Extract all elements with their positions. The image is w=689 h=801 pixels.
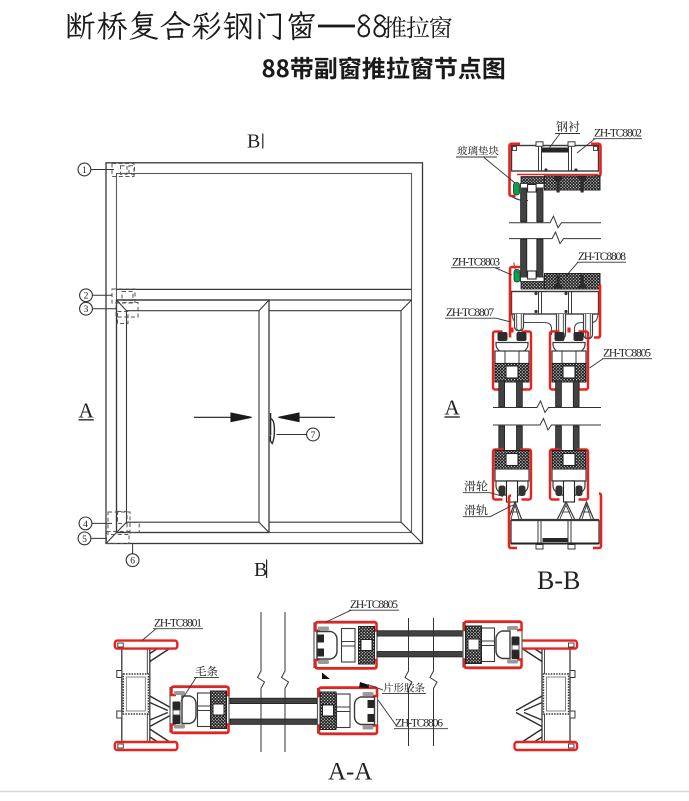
svg-text:4: 4 [83,520,88,530]
svg-text:ZH-TC8806: ZH-TC8806 [395,718,443,730]
svg-text:A-A: A-A [328,759,372,786]
svg-text:B: B [247,130,260,152]
svg-text:B: B [254,559,267,581]
svg-text:A: A [445,396,461,420]
svg-text:ZH-TC8805: ZH-TC8805 [603,348,651,360]
svg-text:ZH-TC8805: ZH-TC8805 [350,599,398,611]
svg-text:3: 3 [84,305,89,315]
svg-text:1: 1 [82,166,87,176]
svg-text:5: 5 [82,535,87,545]
svg-text:B-B: B-B [537,566,580,595]
svg-text:7: 7 [311,431,316,441]
svg-text:ZH-TC8808: ZH-TC8808 [578,251,626,263]
svg-text:2: 2 [84,292,89,302]
svg-text:ZH-TC8807: ZH-TC8807 [446,307,494,319]
svg-text:ZH-TC8803: ZH-TC8803 [452,257,500,269]
svg-text:6: 6 [130,557,135,567]
svg-text:ZH-TC8802: ZH-TC8802 [594,128,642,140]
svg-text:ZH-TC8801: ZH-TC8801 [154,618,202,630]
svg-text:A: A [79,398,95,422]
